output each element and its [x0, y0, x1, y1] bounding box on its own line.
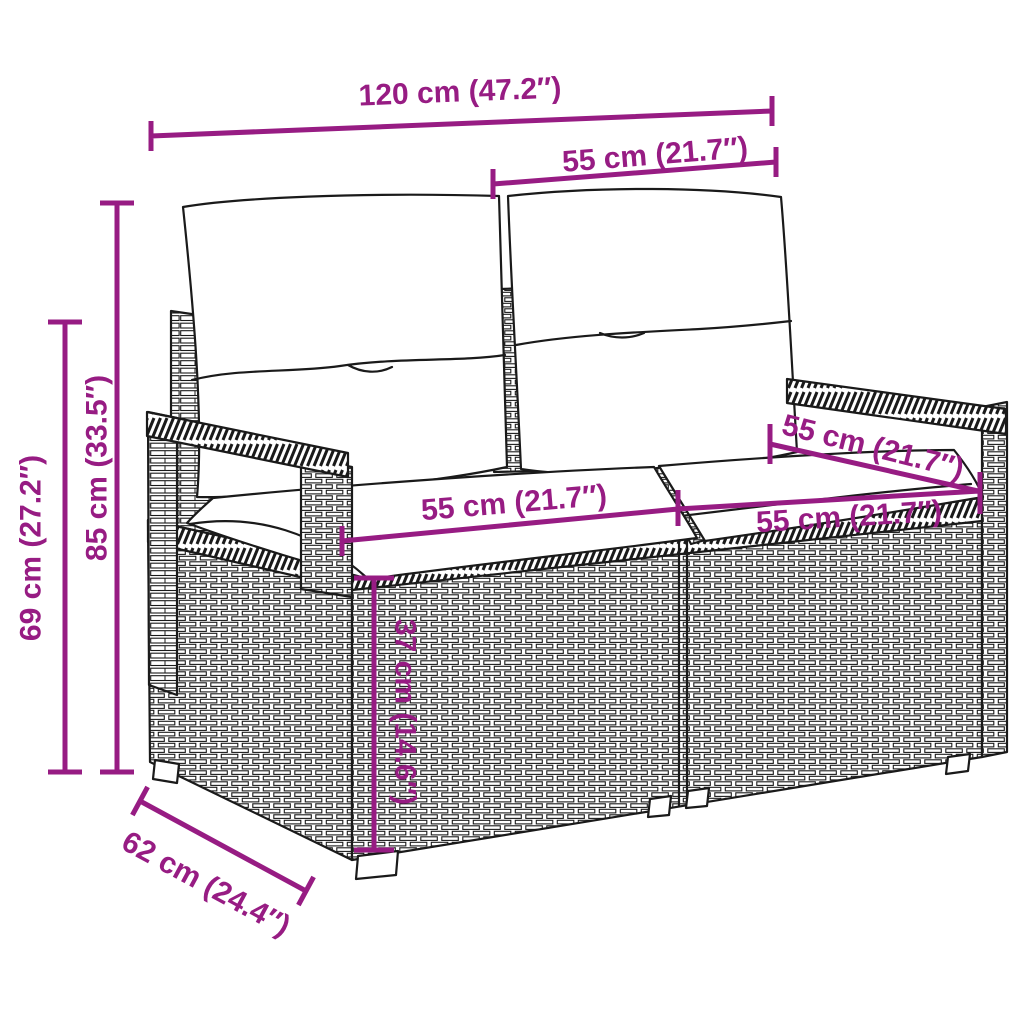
dim-seat-height-label: 37 cm (14.6″): [389, 619, 422, 805]
dim-arm-height-line: [48, 322, 82, 772]
dim-overall-width-label: 120 cm (47.2″): [358, 71, 562, 112]
right-corner-column: [982, 402, 1007, 757]
sofa-foot: [686, 788, 709, 808]
sofa-foot: [648, 796, 671, 817]
dim-overall-height: 85 cm (33.5″): [81, 203, 135, 772]
product-dimension-diagram-page: 120 cm (47.2″) 55 cm (21.7″) 85 cm (33.5…: [0, 0, 1024, 1024]
sofa-foot: [946, 754, 970, 774]
dim-arm-height: 69 cm (27.2″): [15, 322, 83, 772]
dim-arm-height-label: 69 cm (27.2″): [15, 455, 48, 641]
dimension-diagram-canvas: 120 cm (47.2″) 55 cm (21.7″) 85 cm (33.5…: [0, 0, 1024, 1024]
sofa-foot: [153, 760, 179, 783]
dim-overall-depth-label: 62 cm (24.4″): [116, 825, 295, 943]
sofa-illustration: [147, 189, 1007, 879]
left-corner-column: [148, 412, 177, 695]
dim-overall-height-label: 85 cm (33.5″): [81, 375, 114, 561]
sofa-foot: [356, 851, 398, 879]
